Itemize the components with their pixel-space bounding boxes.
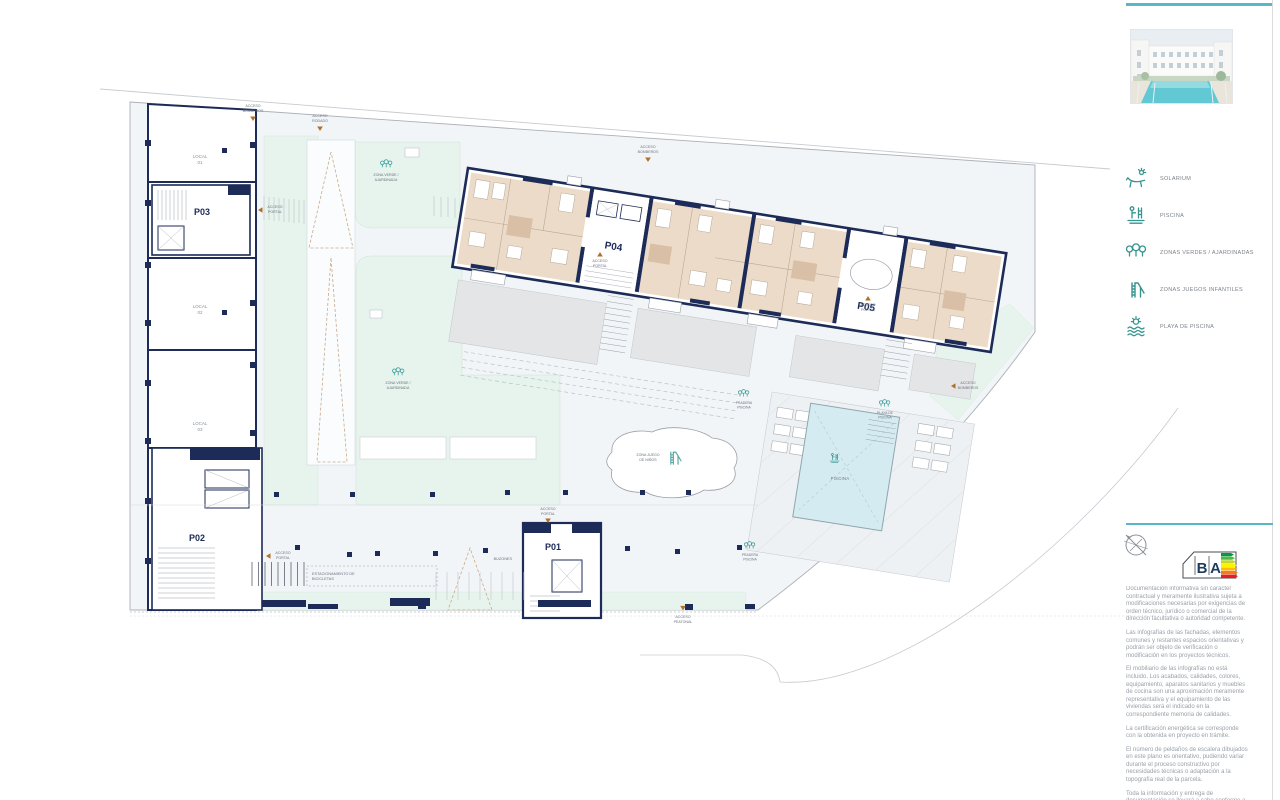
svg-text:PEATONAL: PEATONAL bbox=[674, 620, 693, 624]
left-building-strip: P03 P02 LOCAL01 LOCAL02 LOCAL03 bbox=[145, 104, 262, 610]
disclaimer-paragraph: Toda la información y entrega de documen… bbox=[1126, 791, 1250, 800]
portal-label-p02: P02 bbox=[189, 533, 205, 543]
svg-text:BOMBEROS: BOMBEROS bbox=[243, 109, 264, 113]
buzones-label: BUZONES bbox=[494, 557, 513, 561]
svg-text:LOCAL: LOCAL bbox=[193, 304, 208, 309]
planter bbox=[450, 437, 536, 459]
portal-core-p03: P03 bbox=[152, 185, 250, 255]
right-info-panel: SOLARIUM PISCINA ZONAS VERDES / AJARDINA… bbox=[1118, 0, 1274, 800]
svg-text:PORTAL: PORTAL bbox=[276, 556, 290, 560]
sun-waves-icon bbox=[1124, 315, 1148, 339]
disclaimer-paragraph: El mobiliario de las infografías no está… bbox=[1126, 666, 1250, 719]
trees-icon bbox=[1124, 241, 1148, 265]
pool-ladder-icon bbox=[1124, 204, 1148, 228]
planter bbox=[360, 437, 446, 459]
legal-disclaimer: Documentación informativa sin carácter c… bbox=[1126, 586, 1250, 800]
sun-lounger-icon bbox=[1124, 167, 1148, 191]
svg-text:ESTACIONAMIENTO DE: ESTACIONAMIENTO DE bbox=[312, 572, 355, 576]
pool-label: PISCINA bbox=[831, 476, 850, 481]
svg-text:AJARDINADA: AJARDINADA bbox=[375, 178, 398, 182]
legend-item-solarium: SOLARIUM bbox=[1124, 166, 1272, 192]
svg-text:ZONA JUEGO: ZONA JUEGO bbox=[636, 453, 659, 457]
svg-text:LOCAL: LOCAL bbox=[193, 154, 208, 159]
pool-area: PISCINA bbox=[747, 392, 975, 582]
svg-text:RODADO: RODADO bbox=[312, 119, 328, 123]
svg-text:BICICLETAS: BICICLETAS bbox=[312, 577, 334, 581]
legend-label: PLAYA DE PISCINA bbox=[1160, 324, 1214, 330]
legend-label: SOLARIUM bbox=[1160, 176, 1191, 182]
svg-text:ACCESO: ACCESO bbox=[245, 104, 260, 108]
portal-label-p03: P03 bbox=[194, 207, 210, 217]
svg-text:PORTAL: PORTAL bbox=[268, 210, 282, 214]
svg-text:PRADERA: PRADERA bbox=[736, 401, 753, 405]
portal-label-p01: P01 bbox=[545, 542, 561, 552]
svg-text:PISCINA: PISCINA bbox=[743, 558, 757, 562]
disclaimer-paragraph: El número de peldaños de escalera dibuja… bbox=[1126, 747, 1250, 785]
svg-text:ZONA VERDE /: ZONA VERDE / bbox=[385, 381, 410, 385]
project-render-thumbnail bbox=[1131, 30, 1232, 103]
svg-text:BOMBEROS: BOMBEROS bbox=[958, 386, 979, 390]
svg-text:PORTAL: PORTAL bbox=[861, 308, 875, 312]
mid-divider bbox=[1126, 523, 1273, 525]
svg-text:03: 03 bbox=[197, 427, 203, 432]
svg-text:PORTAL: PORTAL bbox=[593, 264, 607, 268]
site-plan-sheet: { "colors": { "teal_accent": "#36948f", … bbox=[0, 0, 1280, 800]
panel-right-border bbox=[1272, 0, 1273, 800]
svg-text:PISCINA: PISCINA bbox=[737, 406, 751, 410]
svg-text:PRADERA: PRADERA bbox=[742, 553, 759, 557]
legend-item-juegos-infantiles: ZONAS JUEGOS INFANTILES bbox=[1124, 277, 1272, 303]
slide-icon bbox=[1124, 278, 1148, 302]
disclaimer-paragraph: La certificación energética se correspon… bbox=[1126, 726, 1250, 741]
svg-text:ACCESO: ACCESO bbox=[312, 114, 327, 118]
energy-letter-b: B bbox=[1197, 560, 1208, 577]
svg-text:PORTAL: PORTAL bbox=[541, 512, 555, 516]
legend: SOLARIUM PISCINA ZONAS VERDES / AJARDINA… bbox=[1124, 166, 1272, 351]
svg-text:PLAYA DE: PLAYA DE bbox=[877, 411, 894, 415]
top-divider bbox=[1126, 3, 1273, 6]
svg-text:ACCESO: ACCESO bbox=[860, 303, 875, 307]
svg-text:BOMBEROS: BOMBEROS bbox=[638, 150, 659, 154]
svg-text:ACCESO: ACCESO bbox=[960, 381, 975, 385]
legend-label: ZONAS VERDES / AJARDINADAS bbox=[1160, 250, 1254, 256]
svg-text:PISCINA: PISCINA bbox=[878, 416, 892, 420]
portal-core-p02: P02 bbox=[152, 448, 262, 610]
legend-item-piscina: PISCINA bbox=[1124, 203, 1272, 229]
svg-text:ZONA VERDE /: ZONA VERDE / bbox=[373, 173, 398, 177]
energy-certificate-badge: B A bbox=[1180, 548, 1240, 582]
svg-text:ACCESO: ACCESO bbox=[275, 551, 290, 555]
north-compass-icon bbox=[1120, 528, 1152, 560]
svg-text:02: 02 bbox=[197, 310, 203, 315]
legend-label: ZONAS JUEGOS INFANTILES bbox=[1160, 287, 1243, 293]
legend-item-playa-piscina: PLAYA DE PISCINA bbox=[1124, 314, 1272, 340]
svg-text:ACCESO: ACCESO bbox=[592, 259, 607, 263]
legend-item-zonas-verdes: ZONAS VERDES / AJARDINADAS bbox=[1124, 240, 1272, 266]
svg-text:ACCESO: ACCESO bbox=[540, 507, 555, 511]
ground-floor-site-plan: P03 P02 LOCAL01 LOCAL02 LOCAL03 bbox=[0, 0, 1280, 800]
disclaimer-paragraph: Las infografías de las fachadas, element… bbox=[1126, 630, 1250, 660]
svg-text:ACCESO: ACCESO bbox=[267, 205, 282, 209]
svg-text:LOCAL: LOCAL bbox=[193, 421, 208, 426]
svg-text:ACCESO: ACCESO bbox=[640, 145, 655, 149]
svg-text:AJARDINADA: AJARDINADA bbox=[387, 386, 410, 390]
svg-text:01: 01 bbox=[197, 160, 203, 165]
svg-text:DE NIÑOS: DE NIÑOS bbox=[639, 457, 657, 462]
disclaimer-paragraph: Documentación informativa sin carácter c… bbox=[1126, 586, 1250, 624]
swimming-pool bbox=[793, 403, 900, 531]
legend-label: PISCINA bbox=[1160, 213, 1184, 219]
svg-text:ACCESO: ACCESO bbox=[675, 615, 690, 619]
energy-letter-a: A bbox=[1210, 560, 1221, 577]
